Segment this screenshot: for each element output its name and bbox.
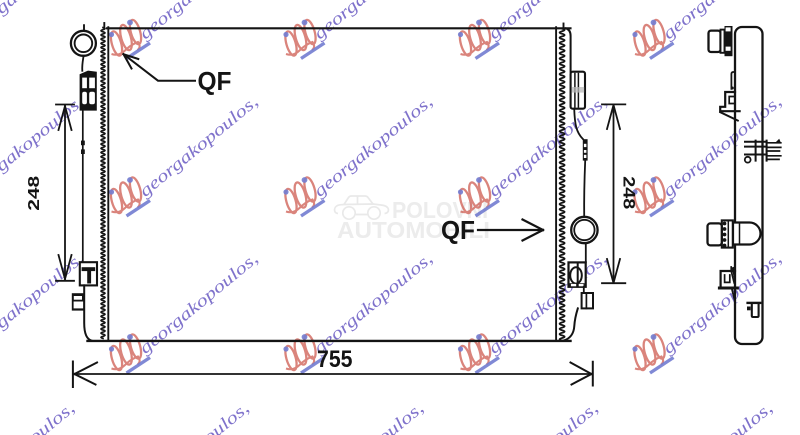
- svg-text:QF: QF: [441, 215, 475, 245]
- svg-text:248: 248: [26, 176, 43, 211]
- svg-text:248: 248: [620, 176, 639, 209]
- svg-text:QF: QF: [198, 66, 232, 96]
- svg-text:755: 755: [317, 346, 353, 373]
